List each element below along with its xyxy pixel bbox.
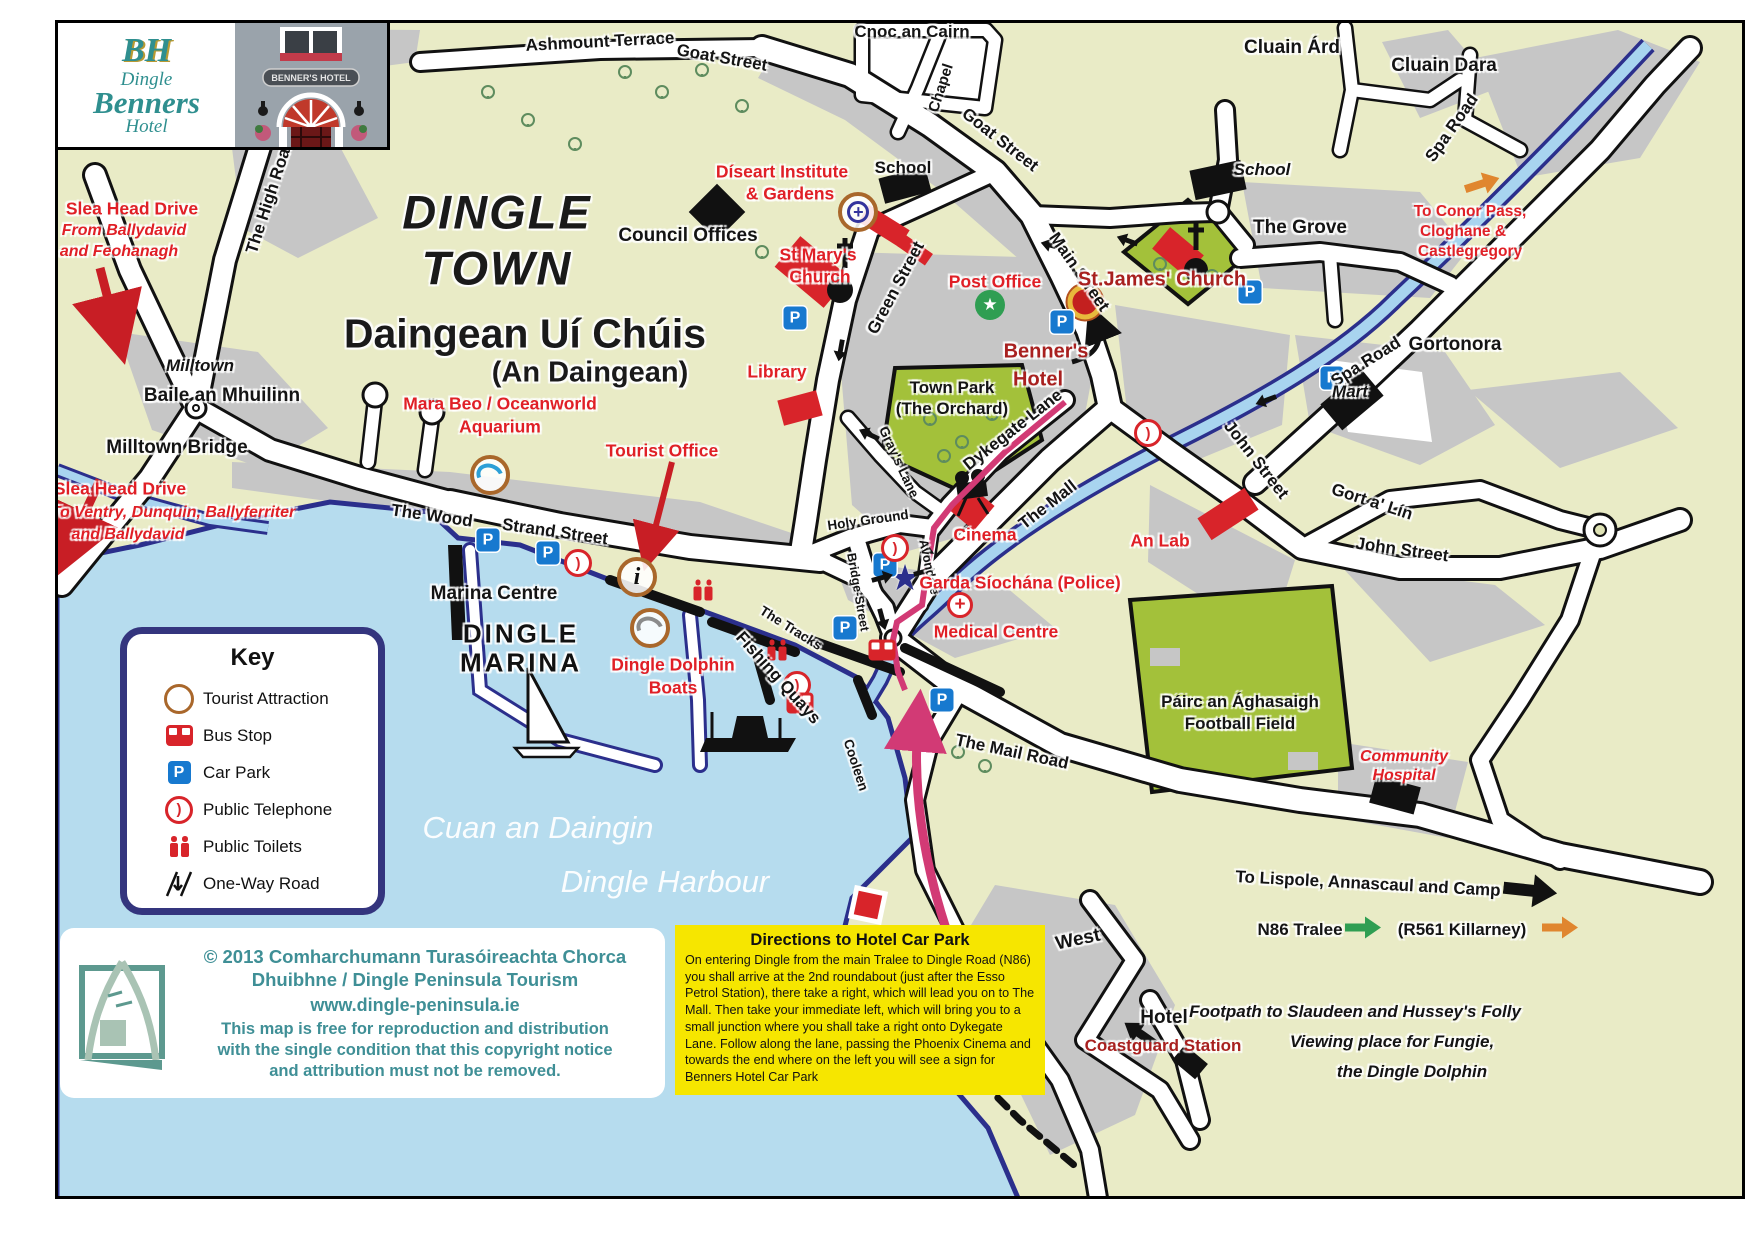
- tourism-logo-icon: [70, 948, 175, 1078]
- directions-title: Directions to Hotel Car Park: [685, 931, 1035, 950]
- one-way-road-icon: [163, 868, 195, 900]
- key-item-tourist-attraction: Tourist Attraction: [127, 680, 378, 717]
- key-label: Bus Stop: [203, 726, 272, 746]
- key-item-one-way-road: One-Way Road: [127, 865, 378, 902]
- public-toilets-icon: [170, 836, 189, 857]
- public-telephone-icon: ): [165, 796, 193, 824]
- map-frame: i+★★+PPPPPPPPP)))) Ashmount TerraceGoat …: [55, 20, 1745, 1199]
- key-item-public-telephone: ) Public Telephone: [127, 791, 378, 828]
- hotel-logo-box: BH Dingle Benners Hotel BENNER'S HOTEL: [55, 20, 390, 150]
- copyright-note2: with the single condition that this copy…: [175, 1040, 655, 1061]
- hotel-photo: BENNER'S HOTEL: [235, 23, 387, 147]
- key-label: Public Toilets: [203, 837, 302, 857]
- hotel-monogram: BH: [122, 34, 171, 68]
- photo-sign-text: BENNER'S HOTEL: [271, 73, 351, 83]
- map-canvas: i+★★+PPPPPPPPP)))) Ashmount TerraceGoat …: [55, 20, 1745, 1199]
- key-item-bus-stop: Bus Stop: [127, 717, 378, 754]
- hotel-logo-text: BH Dingle Benners Hotel: [58, 23, 235, 147]
- copyright-line1: © 2013 Comharchumann Turasóireachta Chor…: [175, 945, 655, 968]
- copyright-website[interactable]: www.dingle-peninsula.ie: [175, 994, 655, 1017]
- key-label: Public Telephone: [203, 800, 332, 820]
- map-key: Key Tourist Attraction Bus Stop P Car Pa…: [120, 627, 385, 915]
- bus-stop-icon: [166, 725, 193, 746]
- copyright-note3: and attribution must not be removed.: [175, 1061, 655, 1082]
- copyright-box: © 2013 Comharchumann Turasóireachta Chor…: [60, 928, 665, 1098]
- key-item-car-park: P Car Park: [127, 754, 378, 791]
- key-heading: Key: [127, 644, 378, 672]
- car-park-icon: P: [168, 761, 191, 784]
- key-label: Tourist Attraction: [203, 689, 329, 709]
- directions-body: On entering Dingle from the main Tralee …: [685, 952, 1035, 1086]
- hotel-name-line2: Benners: [93, 87, 200, 118]
- copyright-line2: Dhuibhne / Dingle Peninsula Tourism: [175, 968, 655, 991]
- copyright-note1: This map is free for reproduction and di…: [175, 1019, 655, 1040]
- key-label: One-Way Road: [203, 874, 320, 894]
- dingle-town-map-page: i+★★+PPPPPPPPP)))) Ashmount TerraceGoat …: [0, 0, 1754, 1241]
- key-item-public-toilets: Public Toilets: [127, 828, 378, 865]
- tourist-attraction-icon: [164, 684, 194, 714]
- directions-box: Directions to Hotel Car Park On entering…: [675, 925, 1045, 1095]
- hotel-name-line3: Hotel: [125, 117, 167, 136]
- key-label: Car Park: [203, 763, 270, 783]
